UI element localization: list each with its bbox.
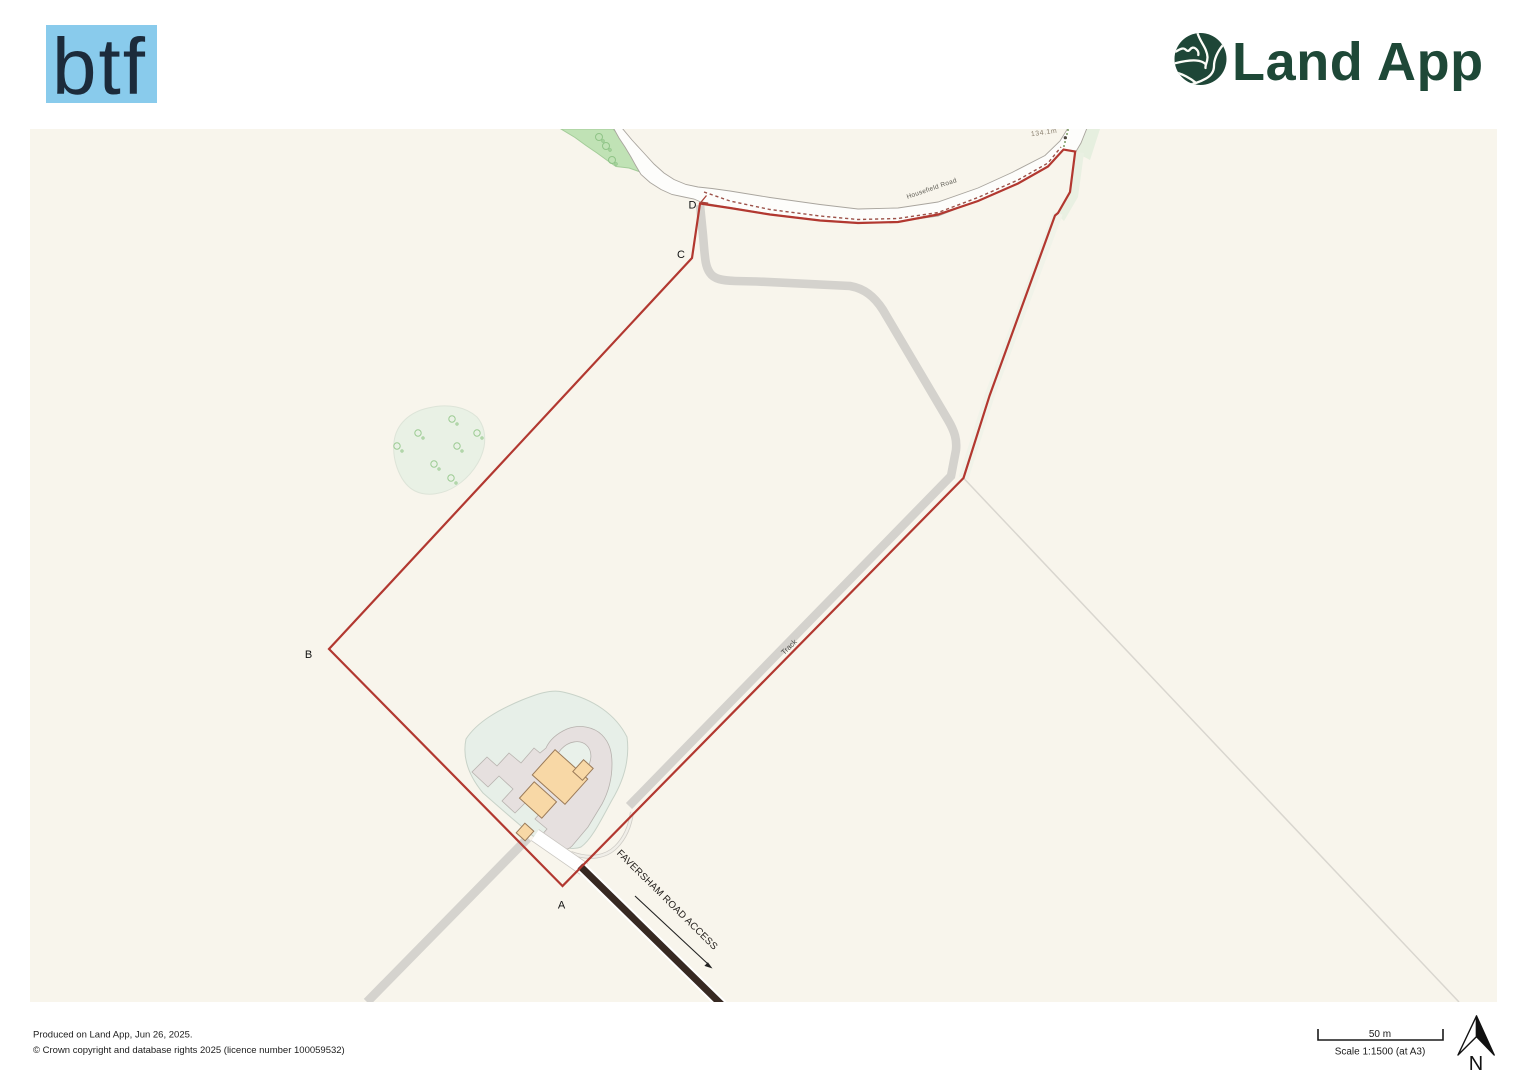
svg-text:Produced on Land App, Jun 26,: Produced on Land App, Jun 26, 2025. (33, 1030, 193, 1041)
svg-text:Scale 1:1500 (at A3): Scale 1:1500 (at A3) (1335, 1047, 1426, 1058)
svg-text:B: B (305, 649, 312, 661)
svg-text:btf: btf (52, 22, 147, 111)
svg-text:D: D (689, 200, 697, 212)
svg-text:50 m: 50 m (1369, 1029, 1391, 1040)
svg-text:Land App: Land App (1232, 32, 1484, 92)
svg-text:A: A (558, 900, 566, 912)
svg-text:C: C (677, 249, 685, 261)
svg-text:© Crown copyright and database: © Crown copyright and database rights 20… (33, 1045, 345, 1056)
svg-text:N: N (1469, 1053, 1483, 1075)
